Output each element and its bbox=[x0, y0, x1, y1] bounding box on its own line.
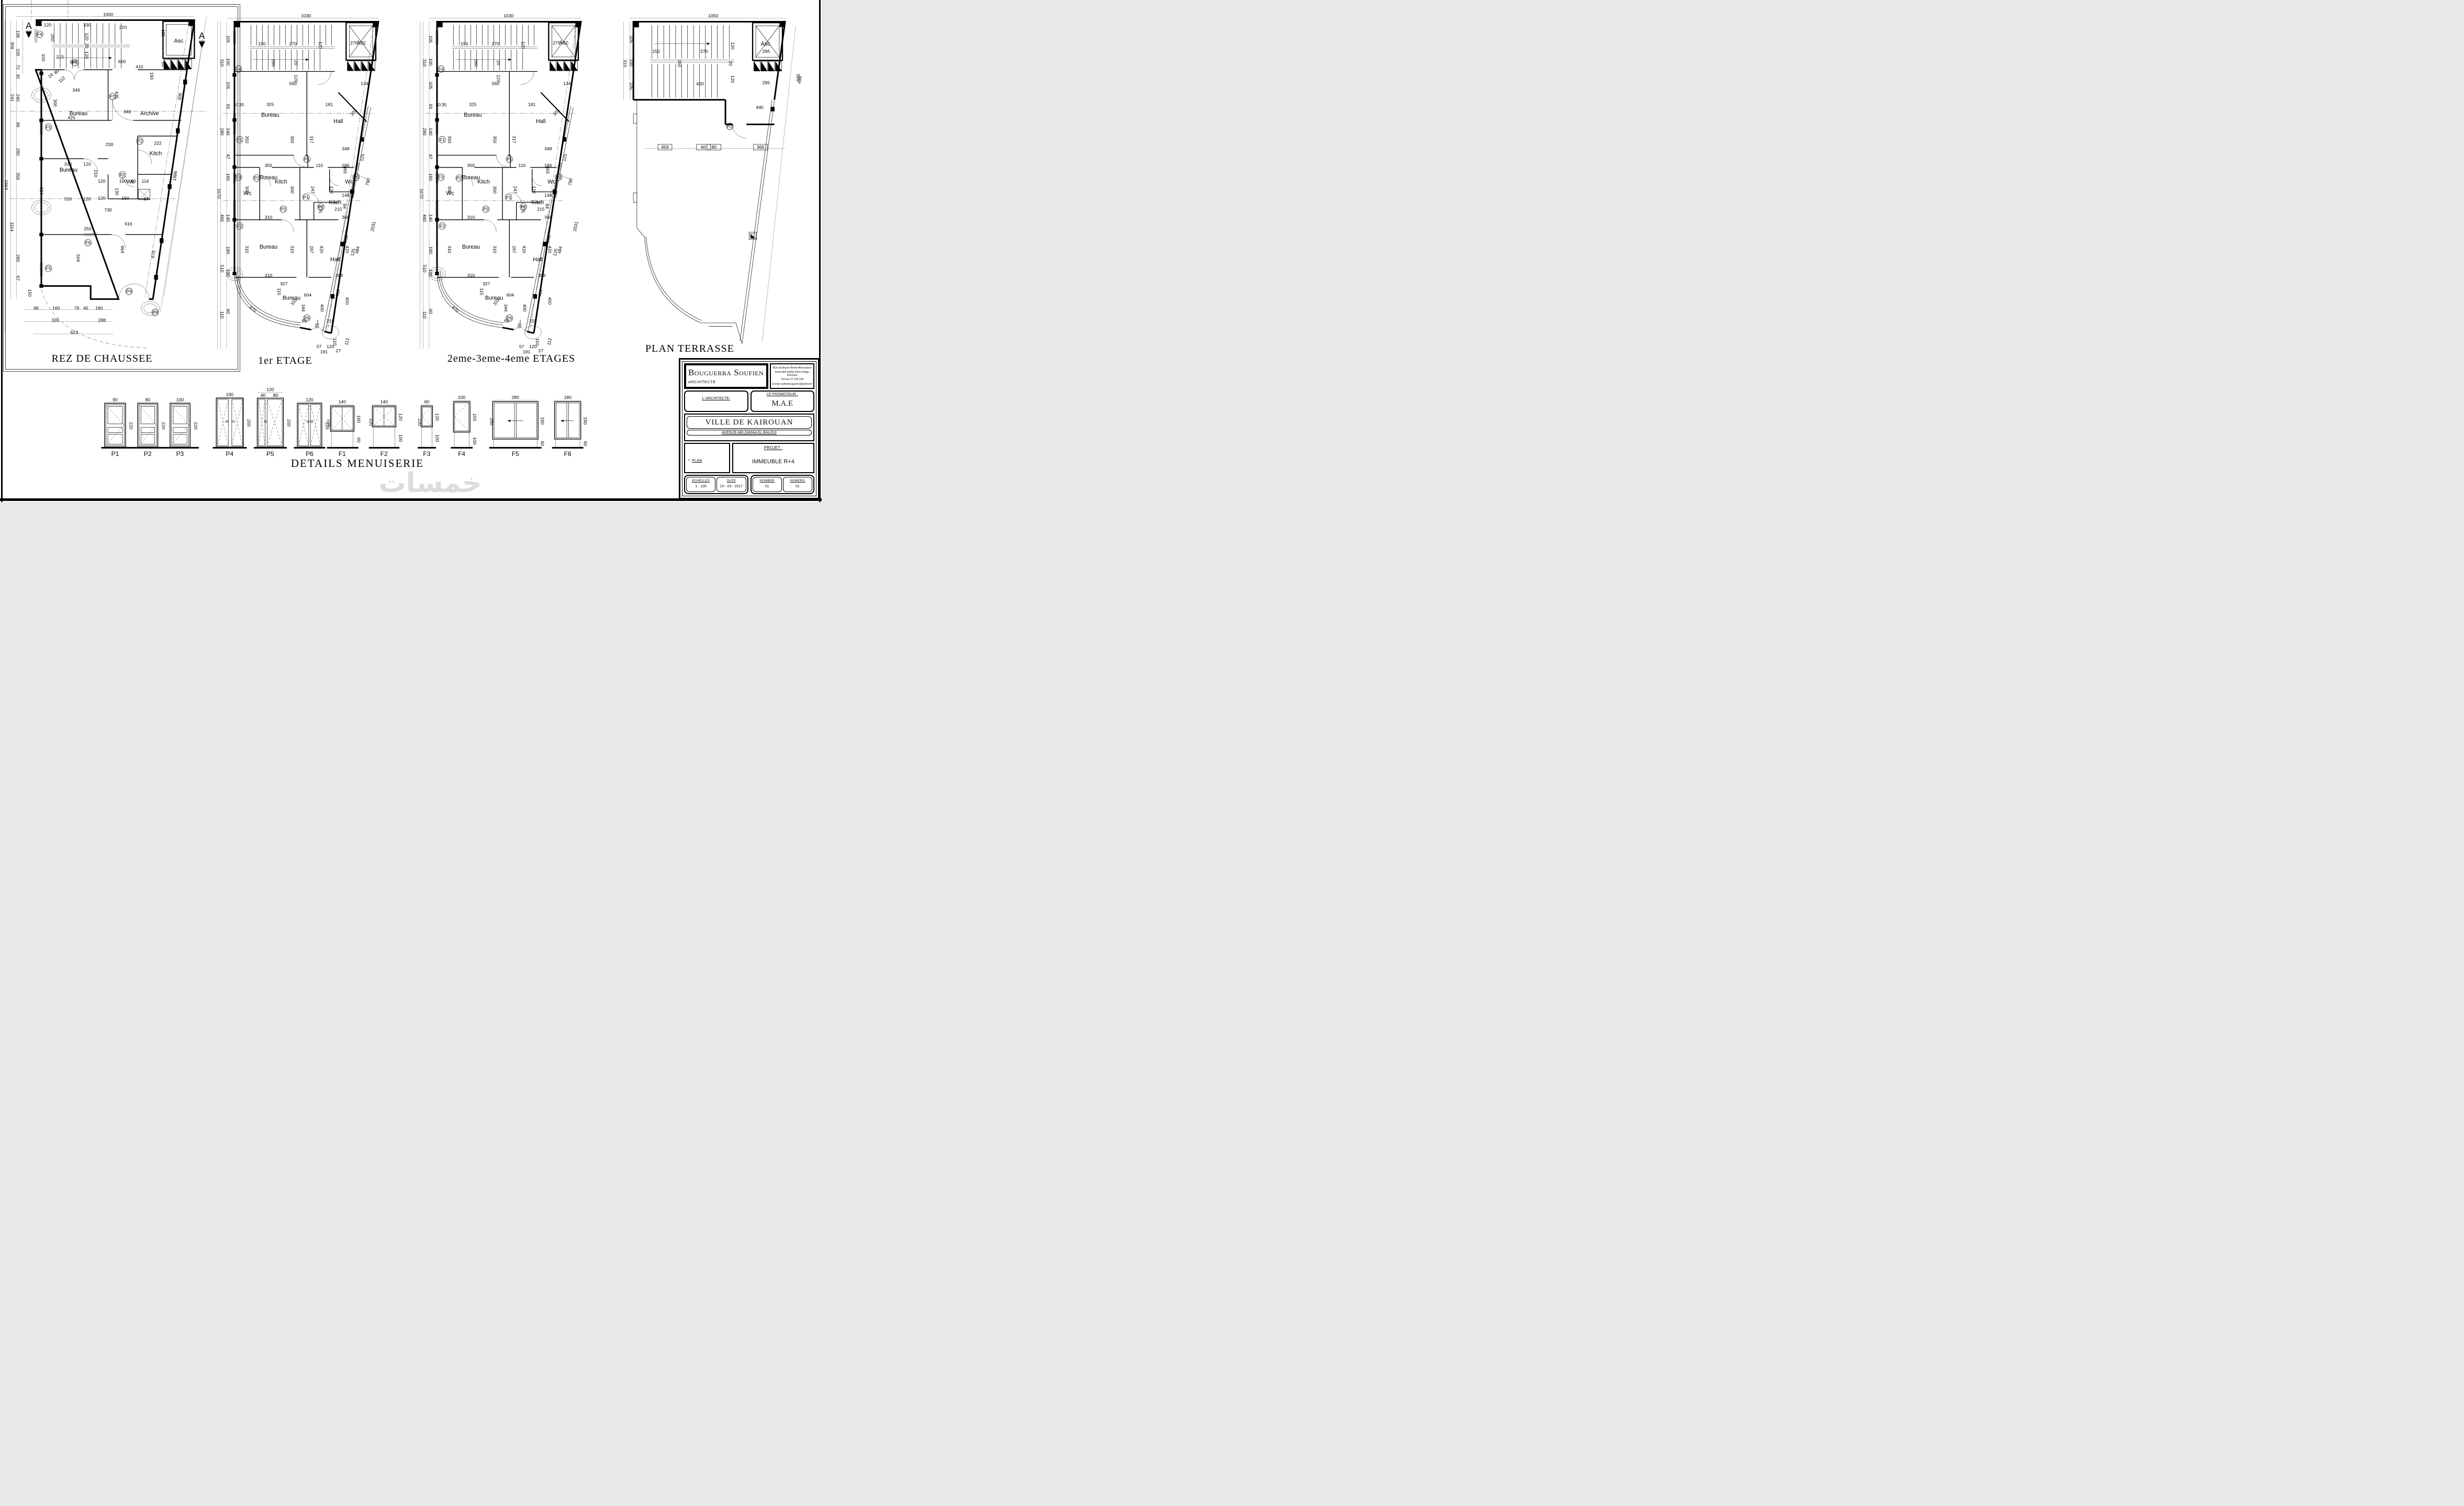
project-box: PROJET : IMMEUBLE R+4 bbox=[732, 443, 814, 473]
svg-text:P2: P2 bbox=[456, 175, 462, 181]
svg-text:Bureau: Bureau bbox=[464, 112, 481, 118]
svg-text:355: 355 bbox=[467, 163, 475, 168]
svg-text:112: 112 bbox=[57, 75, 66, 84]
svg-text:400: 400 bbox=[319, 304, 324, 312]
svg-text:310: 310 bbox=[265, 215, 273, 220]
svg-text:420: 420 bbox=[547, 246, 552, 253]
svg-text:Wc: Wc bbox=[547, 179, 556, 185]
svg-text:100: 100 bbox=[176, 397, 184, 403]
project-value: IMMEUBLE R+4 bbox=[733, 459, 813, 465]
svg-text:420: 420 bbox=[521, 246, 527, 253]
svg-text:309: 309 bbox=[10, 41, 15, 49]
svg-text:2031: 2031 bbox=[369, 221, 377, 232]
svg-text:100: 100 bbox=[119, 179, 127, 184]
svg-text:288: 288 bbox=[98, 318, 106, 323]
svg-text:110: 110 bbox=[316, 163, 323, 168]
svg-text:150: 150 bbox=[461, 41, 468, 47]
svg-text:Bureau: Bureau bbox=[260, 244, 277, 250]
svg-text:P4: P4 bbox=[152, 310, 158, 315]
svg-text:A: A bbox=[199, 30, 205, 41]
date-value: 15 - 03 - 2017 bbox=[717, 485, 745, 488]
plan-et1: 1030150270275120260201205601341053101001… bbox=[216, 2, 394, 372]
svg-text:120: 120 bbox=[84, 33, 89, 41]
svg-text:99: 99 bbox=[16, 122, 21, 127]
svg-text:84: 84 bbox=[545, 204, 550, 209]
svg-text:A: A bbox=[26, 20, 32, 31]
svg-text:514: 514 bbox=[39, 187, 44, 195]
svg-text:470: 470 bbox=[451, 305, 461, 314]
svg-text:P5: P5 bbox=[266, 450, 274, 458]
svg-text:60: 60 bbox=[540, 441, 545, 446]
svg-text:190: 190 bbox=[428, 247, 433, 254]
svg-text:317: 317 bbox=[511, 136, 517, 143]
svg-text:120: 120 bbox=[83, 196, 91, 202]
svg-text:1050: 1050 bbox=[708, 13, 719, 18]
svg-text:310: 310 bbox=[219, 59, 225, 67]
svg-text:P1: P1 bbox=[111, 450, 119, 458]
svg-text:100: 100 bbox=[226, 269, 231, 277]
svg-text:420: 420 bbox=[319, 246, 324, 253]
svg-text:Wc: Wc bbox=[446, 191, 454, 197]
svg-text:30: 30 bbox=[16, 74, 21, 79]
svg-text:360: 360 bbox=[757, 144, 765, 150]
svg-text:310: 310 bbox=[64, 196, 72, 202]
svg-text:410: 410 bbox=[537, 289, 544, 297]
svg-text:220: 220 bbox=[193, 422, 198, 430]
title-terrasse: PLAN TERRASSE bbox=[645, 343, 734, 355]
svg-text:120: 120 bbox=[434, 413, 440, 421]
location-box: VILLE DE KAIROUAN AVENUE ABI ZAMAA EL BA… bbox=[684, 414, 814, 441]
svg-text:348: 348 bbox=[342, 146, 350, 151]
svg-text:410: 410 bbox=[334, 289, 341, 297]
svg-text:350: 350 bbox=[492, 136, 498, 143]
svg-text:Kitch: Kitch bbox=[275, 179, 287, 185]
svg-text:96: 96 bbox=[33, 305, 39, 310]
svg-text:97: 97 bbox=[143, 196, 149, 202]
svg-text:Archive: Archive bbox=[140, 110, 159, 117]
svg-text:125: 125 bbox=[561, 153, 568, 162]
svg-text:Bureau: Bureau bbox=[462, 244, 480, 250]
svg-text:295: 295 bbox=[763, 49, 770, 54]
svg-text:100: 100 bbox=[458, 395, 466, 400]
svg-text:20: 20 bbox=[84, 43, 89, 49]
svg-text:F4: F4 bbox=[236, 66, 241, 72]
title-et234: 2eme-3eme-4eme ETAGES bbox=[447, 353, 575, 365]
svg-text:120: 120 bbox=[84, 51, 89, 59]
plan-terrasse: 1050150270295295260420120201201053101001… bbox=[620, 2, 810, 361]
svg-text:60: 60 bbox=[583, 441, 588, 446]
svg-text:F2: F2 bbox=[237, 224, 242, 229]
svg-text:310: 310 bbox=[623, 60, 628, 68]
svg-text:105: 105 bbox=[629, 36, 634, 43]
svg-text:120: 120 bbox=[44, 23, 52, 28]
city: VILLE DE KAIROUAN bbox=[687, 416, 812, 429]
svg-text:220: 220 bbox=[327, 419, 332, 427]
svg-text:57: 57 bbox=[317, 344, 322, 349]
avenue: AVENUE ABI ZAMAA EL BALOUI bbox=[687, 430, 812, 436]
svg-text:120: 120 bbox=[531, 186, 536, 194]
svg-text:623: 623 bbox=[70, 330, 78, 335]
svg-text:280: 280 bbox=[16, 148, 21, 156]
svg-text:P2: P2 bbox=[281, 207, 286, 212]
echelles-cell: ECHELLES 1 - 100 bbox=[686, 477, 715, 492]
svg-text:310: 310 bbox=[467, 273, 475, 278]
svg-text:215: 215 bbox=[57, 54, 64, 60]
date-label: DATE bbox=[717, 479, 745, 483]
svg-text:240: 240 bbox=[16, 94, 21, 102]
svg-text:Bureau: Bureau bbox=[70, 110, 87, 117]
svg-text:604: 604 bbox=[507, 293, 514, 298]
svg-text:105: 105 bbox=[226, 82, 231, 90]
svg-text:100: 100 bbox=[629, 59, 634, 66]
svg-text:F5: F5 bbox=[512, 450, 519, 458]
svg-text:80: 80 bbox=[711, 144, 716, 150]
echelles-value: 1 - 100 bbox=[687, 485, 715, 488]
svg-text:Asc: Asc bbox=[174, 38, 184, 44]
numero-cell: NUMERO 01 bbox=[783, 477, 812, 492]
svg-text:504: 504 bbox=[76, 254, 81, 262]
architect-subtitle: ARCHITECTE bbox=[688, 380, 764, 384]
svg-text:250: 250 bbox=[247, 419, 252, 427]
svg-text:Kitch: Kitch bbox=[477, 179, 490, 185]
svg-text:P2: P2 bbox=[254, 175, 260, 181]
svg-text:210: 210 bbox=[93, 170, 98, 177]
svg-text:180: 180 bbox=[564, 395, 572, 400]
svg-text:100: 100 bbox=[16, 49, 21, 57]
svg-text:310: 310 bbox=[265, 273, 273, 278]
svg-text:300: 300 bbox=[290, 186, 295, 194]
svg-text:P3: P3 bbox=[353, 175, 359, 180]
svg-text:327: 327 bbox=[280, 281, 288, 286]
svg-text:80: 80 bbox=[145, 397, 150, 403]
svg-text:454: 454 bbox=[797, 75, 803, 84]
svg-text:350: 350 bbox=[447, 136, 452, 143]
svg-text:125: 125 bbox=[359, 153, 365, 162]
svg-text:330: 330 bbox=[83, 23, 91, 28]
architect-name: Bouguerra Soufien bbox=[688, 366, 764, 380]
svg-text:180: 180 bbox=[95, 305, 103, 310]
svg-text:Bureau: Bureau bbox=[283, 295, 300, 302]
svg-text:400: 400 bbox=[522, 304, 527, 312]
svg-text:280: 280 bbox=[422, 128, 427, 136]
svg-text:270: 270 bbox=[289, 41, 297, 47]
echelles-label: ECHELLES bbox=[687, 479, 715, 483]
svg-text:Asc: Asc bbox=[559, 40, 568, 46]
svg-text:45: 45 bbox=[83, 305, 88, 310]
svg-text:67: 67 bbox=[16, 276, 21, 281]
architect-name-box: Bouguerra Soufien ARCHITECTE bbox=[684, 363, 768, 389]
architect-cell: L' ARCHITECTE: bbox=[684, 391, 748, 412]
nombre-cell: NOMBRE 01 bbox=[753, 477, 782, 492]
svg-text:310: 310 bbox=[492, 246, 498, 253]
title-block: Bouguerra Soufien ARCHITECTE Rue Soukayn… bbox=[679, 358, 820, 499]
svg-text:1030: 1030 bbox=[301, 13, 311, 18]
svg-text:134: 134 bbox=[361, 81, 368, 86]
svg-text:F6: F6 bbox=[564, 450, 572, 458]
svg-text:112: 112 bbox=[343, 338, 350, 346]
svg-text:Hall: Hall bbox=[536, 118, 545, 125]
svg-text:260: 260 bbox=[50, 34, 55, 41]
svg-text:105: 105 bbox=[226, 36, 231, 43]
svg-text:160: 160 bbox=[356, 415, 361, 423]
svg-text:317: 317 bbox=[309, 136, 314, 143]
svg-text:280: 280 bbox=[511, 395, 519, 400]
svg-text:120: 120 bbox=[329, 186, 334, 194]
svg-text:100: 100 bbox=[472, 437, 477, 445]
svg-text:115: 115 bbox=[479, 288, 484, 295]
svg-text:260: 260 bbox=[677, 60, 682, 68]
svg-text:60: 60 bbox=[428, 309, 433, 314]
svg-text:84: 84 bbox=[342, 204, 348, 209]
svg-text:310: 310 bbox=[447, 246, 452, 253]
svg-text:P5: P5 bbox=[72, 60, 78, 65]
svg-text:222: 222 bbox=[154, 141, 162, 146]
svg-text:Asc: Asc bbox=[356, 40, 366, 46]
svg-text:P2: P2 bbox=[110, 94, 116, 99]
svg-text:P2: P2 bbox=[120, 172, 126, 177]
svg-text:560: 560 bbox=[289, 81, 297, 86]
footer-group-left: ECHELLES 1 - 100 DATE 15 - 03 - 2017 bbox=[684, 475, 748, 494]
svg-text:35: 35 bbox=[442, 102, 447, 107]
svg-text:215: 215 bbox=[537, 207, 545, 212]
plan-rdc: 1000120330210260120201204351856019066041… bbox=[0, 0, 248, 373]
nombre-value: 01 bbox=[753, 485, 781, 488]
svg-text:560: 560 bbox=[491, 81, 499, 86]
svg-text:47: 47 bbox=[226, 154, 231, 159]
svg-text:P2: P2 bbox=[137, 139, 143, 144]
svg-text:130: 130 bbox=[115, 188, 120, 196]
svg-text:79: 79 bbox=[74, 305, 80, 310]
svg-text:368: 368 bbox=[342, 215, 350, 220]
svg-text:218: 218 bbox=[327, 318, 334, 323]
svg-text:140: 140 bbox=[339, 399, 346, 405]
address-line-4: E-mail: sofienbouguerra@yahoo.fr bbox=[772, 383, 812, 386]
svg-text:440: 440 bbox=[756, 105, 764, 110]
svg-text:190: 190 bbox=[583, 417, 588, 425]
address-line-2: Immeuble belhaj 2éme Etage, Kairouan bbox=[772, 371, 812, 377]
svg-text:40: 40 bbox=[261, 393, 266, 398]
svg-text:255: 255 bbox=[84, 226, 92, 231]
nombre-label: NOMBRE bbox=[753, 479, 781, 483]
svg-text:112: 112 bbox=[546, 338, 553, 346]
svg-text:186: 186 bbox=[342, 163, 350, 168]
svg-text:664: 664 bbox=[120, 246, 125, 253]
svg-text:F2: F2 bbox=[440, 224, 445, 229]
svg-text:358: 358 bbox=[16, 172, 21, 180]
svg-text:110: 110 bbox=[518, 163, 525, 168]
svg-text:310: 310 bbox=[290, 246, 295, 253]
address-line-3: Tel-Fax 77 235 230 bbox=[772, 378, 812, 381]
svg-text:F3: F3 bbox=[423, 450, 430, 458]
svg-text:120: 120 bbox=[306, 397, 313, 403]
svg-text:325: 325 bbox=[266, 102, 274, 107]
svg-text:150: 150 bbox=[41, 54, 46, 62]
svg-text:56: 56 bbox=[314, 323, 319, 329]
svg-text:280: 280 bbox=[219, 128, 225, 136]
svg-text:790: 790 bbox=[364, 177, 371, 186]
svg-text:220: 220 bbox=[128, 422, 133, 430]
svg-text:120: 120 bbox=[98, 195, 106, 200]
svg-text:Wc: Wc bbox=[345, 179, 353, 185]
svg-text:60: 60 bbox=[161, 62, 166, 67]
svg-text:F1: F1 bbox=[237, 137, 242, 142]
svg-text:100: 100 bbox=[428, 269, 433, 277]
svg-text:730: 730 bbox=[104, 207, 112, 213]
svg-text:215: 215 bbox=[334, 207, 342, 212]
svg-text:P6: P6 bbox=[507, 316, 512, 321]
svg-text:120: 120 bbox=[266, 387, 274, 392]
svg-text:20: 20 bbox=[496, 60, 501, 65]
svg-text:327: 327 bbox=[483, 281, 490, 286]
svg-text:Wc: Wc bbox=[243, 191, 252, 197]
svg-text:P1: P1 bbox=[304, 157, 310, 162]
svg-text:247: 247 bbox=[513, 186, 518, 194]
svg-text:1030: 1030 bbox=[503, 13, 513, 18]
svg-text:105: 105 bbox=[428, 36, 433, 43]
svg-text:F5: F5 bbox=[46, 266, 51, 271]
svg-text:150: 150 bbox=[258, 41, 266, 47]
svg-text:110: 110 bbox=[422, 311, 427, 319]
svg-text:510: 510 bbox=[422, 265, 427, 273]
svg-text:140: 140 bbox=[226, 128, 231, 136]
svg-text:93: 93 bbox=[226, 104, 231, 109]
svg-text:F4: F4 bbox=[37, 31, 42, 37]
architect-address-box: Rue Soukayna Benet Alhousayne Immeuble b… bbox=[770, 363, 814, 389]
svg-text:460: 460 bbox=[219, 214, 225, 222]
svg-text:Kitch: Kitch bbox=[150, 151, 162, 157]
svg-text:267: 267 bbox=[511, 246, 517, 253]
svg-text:Hall: Hall bbox=[533, 256, 542, 263]
svg-text:P4: P4 bbox=[226, 450, 234, 458]
svg-text:303: 303 bbox=[349, 108, 358, 117]
svg-text:310: 310 bbox=[64, 162, 72, 167]
svg-text:678: 678 bbox=[150, 250, 156, 259]
svg-text:F1: F1 bbox=[440, 137, 445, 142]
svg-text:140: 140 bbox=[380, 399, 388, 405]
date-cell: DATE 15 - 03 - 2017 bbox=[716, 477, 746, 492]
title-rdc: REZ DE CHAUSSEE bbox=[52, 353, 153, 365]
svg-text:P2: P2 bbox=[144, 450, 152, 458]
plan-et234: 1030150270275120260201205601341053101001… bbox=[419, 2, 597, 372]
svg-text:400: 400 bbox=[344, 297, 350, 305]
svg-text:120: 120 bbox=[730, 75, 735, 83]
svg-text:Bureau: Bureau bbox=[485, 295, 503, 302]
svg-text:Bureau: Bureau bbox=[60, 167, 77, 173]
svg-text:350: 350 bbox=[290, 136, 295, 143]
svg-text:108: 108 bbox=[16, 30, 21, 38]
drawing-sheet: 1000120330210260120201204351856019066041… bbox=[0, 0, 822, 502]
svg-text:660: 660 bbox=[118, 59, 126, 64]
svg-text:280: 280 bbox=[16, 254, 21, 262]
svg-text:60: 60 bbox=[226, 309, 231, 314]
svg-text:P6: P6 bbox=[304, 316, 310, 321]
svg-text:P4: P4 bbox=[126, 289, 132, 294]
svg-text:140: 140 bbox=[226, 214, 231, 222]
svg-text:270: 270 bbox=[491, 41, 499, 47]
svg-text:252: 252 bbox=[545, 235, 552, 243]
svg-text:1670: 1670 bbox=[217, 188, 222, 198]
svg-text:247: 247 bbox=[310, 186, 316, 194]
svg-text:110: 110 bbox=[535, 338, 540, 345]
svg-text:346: 346 bbox=[72, 87, 80, 93]
svg-text:P3: P3 bbox=[176, 450, 184, 458]
svg-text:F4: F4 bbox=[458, 450, 465, 458]
plan-label: PLAN bbox=[692, 458, 702, 463]
svg-text:190: 190 bbox=[540, 417, 545, 425]
svg-text:Hall: Hall bbox=[330, 256, 340, 263]
svg-text:368: 368 bbox=[544, 215, 552, 220]
svg-text:303: 303 bbox=[552, 108, 561, 117]
svg-text:Kitch: Kitch bbox=[329, 199, 341, 206]
svg-text:114: 114 bbox=[142, 179, 149, 184]
numero-label: NUMERO bbox=[783, 479, 812, 483]
svg-text:P3: P3 bbox=[556, 175, 562, 180]
svg-text:230: 230 bbox=[106, 142, 114, 147]
promoter-cell: LE PROMOTEUR : M.A.E bbox=[751, 391, 815, 412]
svg-text:110: 110 bbox=[219, 311, 225, 319]
svg-text:300: 300 bbox=[52, 99, 58, 107]
svg-text:150: 150 bbox=[652, 49, 660, 54]
svg-text:300: 300 bbox=[492, 186, 498, 194]
footer-group-right: NOMBRE 01 NUMERO 01 bbox=[751, 475, 815, 494]
svg-text:260: 260 bbox=[271, 59, 276, 67]
svg-text:420: 420 bbox=[344, 246, 350, 253]
svg-text:100: 100 bbox=[398, 434, 403, 442]
svg-text:355: 355 bbox=[265, 163, 273, 168]
svg-text:110: 110 bbox=[332, 338, 338, 345]
svg-text:310: 310 bbox=[422, 59, 427, 67]
svg-text:30: 30 bbox=[233, 102, 239, 107]
svg-text:220: 220 bbox=[368, 418, 374, 426]
svg-text:260: 260 bbox=[474, 59, 479, 67]
svg-text:120: 120 bbox=[398, 413, 403, 421]
svg-text:604: 604 bbox=[304, 293, 312, 298]
svg-text:348: 348 bbox=[544, 146, 552, 151]
svg-text:160: 160 bbox=[428, 173, 433, 181]
svg-text:309: 309 bbox=[335, 273, 343, 278]
svg-text:125: 125 bbox=[350, 248, 356, 256]
svg-text:295: 295 bbox=[763, 80, 770, 85]
svg-text:72: 72 bbox=[16, 65, 21, 70]
address-line-1: Rue Soukayna Benet Alhousayne bbox=[772, 366, 812, 370]
svg-text:459: 459 bbox=[661, 144, 669, 150]
svg-text:60: 60 bbox=[701, 144, 706, 150]
numero-value: 01 bbox=[783, 485, 812, 488]
svg-text:P2: P2 bbox=[318, 204, 324, 209]
svg-text:149: 149 bbox=[342, 193, 350, 198]
svg-text:120: 120 bbox=[521, 41, 526, 49]
svg-text:210: 210 bbox=[119, 25, 127, 30]
svg-text:325: 325 bbox=[469, 102, 477, 107]
svg-text:60: 60 bbox=[424, 399, 430, 405]
svg-text:2031: 2031 bbox=[572, 221, 579, 232]
svg-text:335: 335 bbox=[52, 318, 60, 323]
svg-text:155: 155 bbox=[354, 162, 361, 171]
architect-label: L' ARCHITECTE: bbox=[702, 397, 730, 400]
svg-text:140: 140 bbox=[428, 128, 433, 136]
svg-text:190: 190 bbox=[149, 72, 154, 80]
svg-text:105: 105 bbox=[428, 82, 433, 90]
svg-text:191: 191 bbox=[320, 349, 328, 354]
svg-text:47: 47 bbox=[428, 154, 433, 159]
plan-type-box: *PLAN bbox=[684, 443, 730, 473]
svg-text:160: 160 bbox=[226, 392, 234, 397]
svg-text:F3: F3 bbox=[439, 175, 444, 180]
svg-text:400: 400 bbox=[547, 297, 552, 305]
svg-text:Wc: Wc bbox=[126, 179, 135, 185]
svg-text:1670: 1670 bbox=[419, 188, 424, 198]
svg-text:309: 309 bbox=[538, 273, 546, 278]
